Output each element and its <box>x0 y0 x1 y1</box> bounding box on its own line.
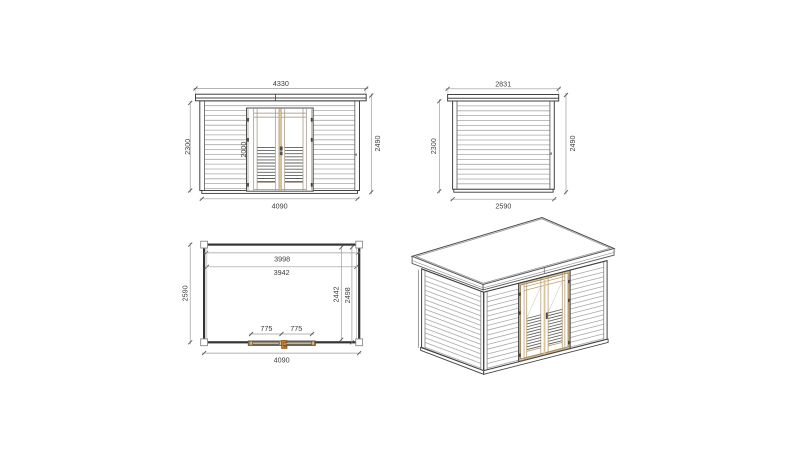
svg-text:2490: 2490 <box>373 136 382 152</box>
svg-text:2442: 2442 <box>331 286 340 302</box>
svg-text:2000: 2000 <box>239 142 248 158</box>
svg-text:2590: 2590 <box>180 285 189 301</box>
svg-text:3942: 3942 <box>274 268 290 277</box>
svg-text:4090: 4090 <box>272 201 288 210</box>
svg-text:2300: 2300 <box>429 138 438 154</box>
svg-text:3998: 3998 <box>274 254 290 263</box>
svg-text:2490: 2490 <box>568 136 577 152</box>
svg-text:2300: 2300 <box>183 139 192 155</box>
svg-text:2498: 2498 <box>343 287 352 303</box>
svg-text:775: 775 <box>290 324 302 333</box>
svg-text:4330: 4330 <box>273 79 289 88</box>
svg-text:2831: 2831 <box>495 79 511 88</box>
svg-text:4090: 4090 <box>274 355 290 364</box>
svg-text:2590: 2590 <box>495 201 511 210</box>
svg-text:775: 775 <box>260 324 272 333</box>
